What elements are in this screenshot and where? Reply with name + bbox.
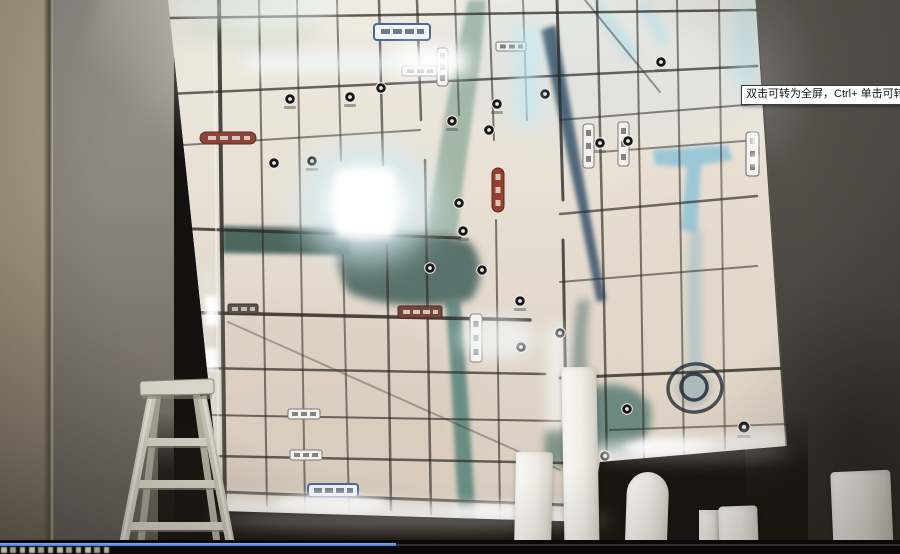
- foam-column: [561, 367, 599, 554]
- foam-column: [514, 452, 553, 554]
- fullscreen-hint-tooltip: 双击可转为全屏，Ctrl+ 单击可转为: [741, 85, 900, 105]
- player-bottom-bar: [0, 540, 900, 554]
- video-frame: 双击可转为全屏，Ctrl+ 单击可转为: [0, 0, 900, 554]
- caption-fragments: [1, 547, 113, 553]
- video-progress-fill[interactable]: [0, 543, 396, 546]
- step-ladder: [100, 344, 250, 554]
